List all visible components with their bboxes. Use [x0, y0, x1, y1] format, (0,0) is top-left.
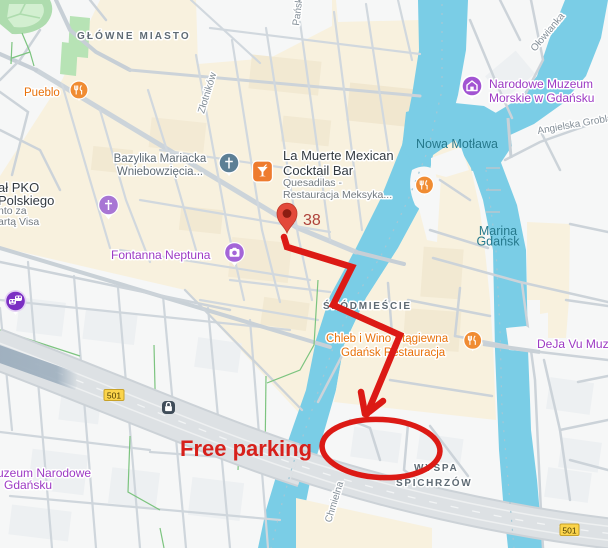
- svg-text:501: 501: [562, 526, 576, 536]
- svg-text:Fontanna Neptuna: Fontanna Neptuna: [111, 248, 211, 262]
- svg-text:Morskie w Gdańsku: Morskie w Gdańsku: [489, 91, 594, 105]
- svg-text:501: 501: [107, 391, 121, 401]
- svg-text:Nowa Motława: Nowa Motława: [416, 137, 498, 151]
- svg-text:Gdańsk: Gdańsk: [476, 235, 520, 249]
- svg-text:GŁÓWNE MIASTO: GŁÓWNE MIASTO: [77, 29, 191, 42]
- svg-text:artą Visa: artą Visa: [0, 216, 39, 228]
- svg-text:Pueblo: Pueblo: [24, 87, 60, 99]
- svg-text:38: 38: [303, 212, 321, 229]
- svg-text:Gdańsku: Gdańsku: [4, 478, 52, 492]
- svg-text:DeJa Vu Muz: DeJa Vu Muz: [537, 337, 608, 351]
- svg-text:Chleb i Wino Stągiewna: Chleb i Wino Stągiewna: [326, 333, 449, 345]
- svg-text:Wniebowzięcia...: Wniebowzięcia...: [117, 166, 203, 178]
- svg-text:Bazylika Mariacka: Bazylika Mariacka: [114, 153, 207, 165]
- svg-text:Restauracja Meksyka...: Restauracja Meksyka...: [283, 189, 392, 201]
- svg-text:Cocktail Bar: Cocktail Bar: [283, 163, 354, 178]
- svg-text:Free parking: Free parking: [180, 436, 312, 461]
- svg-text:Quesadilas -: Quesadilas -: [283, 177, 342, 189]
- svg-text:Narodowe Muzeum: Narodowe Muzeum: [489, 77, 593, 91]
- svg-text:La Muerte Mexican: La Muerte Mexican: [283, 148, 394, 163]
